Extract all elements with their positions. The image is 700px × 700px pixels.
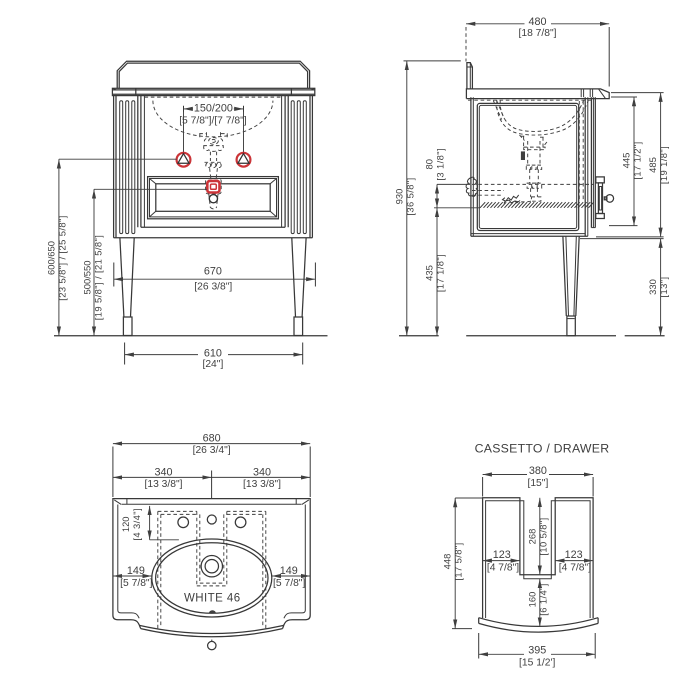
svg-text:680: 680 bbox=[203, 432, 221, 444]
svg-text:CASSETTO / DRAWER: CASSETTO / DRAWER bbox=[475, 441, 610, 455]
svg-text:[15"]: [15"] bbox=[527, 478, 548, 489]
svg-text:[5 7/8"]: [5 7/8"] bbox=[273, 578, 305, 589]
svg-text:340: 340 bbox=[253, 466, 271, 478]
svg-text:[26 3/4"]: [26 3/4"] bbox=[193, 445, 231, 456]
svg-text:[4 7/8"]: [4 7/8"] bbox=[559, 562, 591, 573]
svg-text:480: 480 bbox=[528, 16, 546, 28]
svg-text:[17 1/2"]: [17 1/2"] bbox=[632, 141, 643, 179]
svg-text:[6 1/4"]: [6 1/4"] bbox=[537, 583, 548, 616]
svg-text:448: 448 bbox=[442, 554, 453, 570]
svg-text:123: 123 bbox=[493, 549, 511, 561]
svg-text:[3 1/8"]: [3 1/8"] bbox=[435, 148, 446, 181]
svg-text:[10 5/8"]: [10 5/8"] bbox=[537, 517, 548, 555]
svg-text:[23 5/8"] / [25 5/8"]: [23 5/8"] / [25 5/8"] bbox=[57, 215, 68, 300]
svg-text:[24"]: [24"] bbox=[202, 359, 223, 370]
svg-text:149: 149 bbox=[127, 565, 145, 577]
svg-text:[13 3/8"]: [13 3/8"] bbox=[144, 479, 182, 490]
svg-text:[4 7/8"]: [4 7/8"] bbox=[487, 562, 519, 573]
svg-text:123: 123 bbox=[565, 549, 583, 561]
svg-text:[15 1/2']: [15 1/2'] bbox=[519, 657, 555, 668]
svg-text:610: 610 bbox=[204, 348, 222, 360]
svg-text:600/650: 600/650 bbox=[45, 241, 56, 275]
svg-text:80: 80 bbox=[424, 159, 435, 169]
svg-text:[19 5/8"] / [21 5/8"]: [19 5/8"] / [21 5/8"] bbox=[93, 235, 104, 320]
svg-text:[13 3/8"]: [13 3/8"] bbox=[243, 479, 281, 490]
svg-text:[5 7/8"]/[7 7/8"]: [5 7/8"]/[7 7/8"] bbox=[179, 116, 247, 127]
svg-text:395: 395 bbox=[528, 645, 546, 657]
svg-text:[17 1/8"]: [17 1/8"] bbox=[435, 254, 446, 292]
svg-text:[4 3/4"]: [4 3/4"] bbox=[131, 508, 142, 541]
svg-text:[26 3/8"]: [26 3/8"] bbox=[194, 281, 232, 292]
svg-text:670: 670 bbox=[204, 266, 222, 278]
svg-text:[17 5/8"]: [17 5/8"] bbox=[453, 542, 464, 580]
svg-text:[19 1/8"]: [19 1/8"] bbox=[658, 146, 669, 184]
svg-text:930: 930 bbox=[393, 189, 404, 205]
svg-text:500/550: 500/550 bbox=[82, 261, 93, 295]
svg-text:150/200: 150/200 bbox=[194, 102, 233, 114]
svg-text:[13"]: [13"] bbox=[658, 277, 669, 298]
svg-text:120: 120 bbox=[120, 516, 131, 532]
svg-text:160: 160 bbox=[526, 592, 537, 608]
svg-text:[18 7/8"]: [18 7/8"] bbox=[518, 28, 556, 39]
svg-text:149: 149 bbox=[280, 565, 298, 577]
svg-text:330: 330 bbox=[647, 279, 658, 295]
svg-text:WHITE 46: WHITE 46 bbox=[184, 592, 241, 604]
svg-text:[5 7/8"]: [5 7/8"] bbox=[120, 578, 152, 589]
svg-text:435: 435 bbox=[424, 265, 435, 281]
svg-text:268: 268 bbox=[526, 529, 537, 545]
svg-text:380: 380 bbox=[529, 465, 547, 477]
svg-text:485: 485 bbox=[647, 157, 658, 173]
svg-text:[36 5/8"]: [36 5/8"] bbox=[404, 177, 415, 215]
svg-text:340: 340 bbox=[154, 466, 172, 478]
svg-text:445: 445 bbox=[621, 153, 632, 169]
